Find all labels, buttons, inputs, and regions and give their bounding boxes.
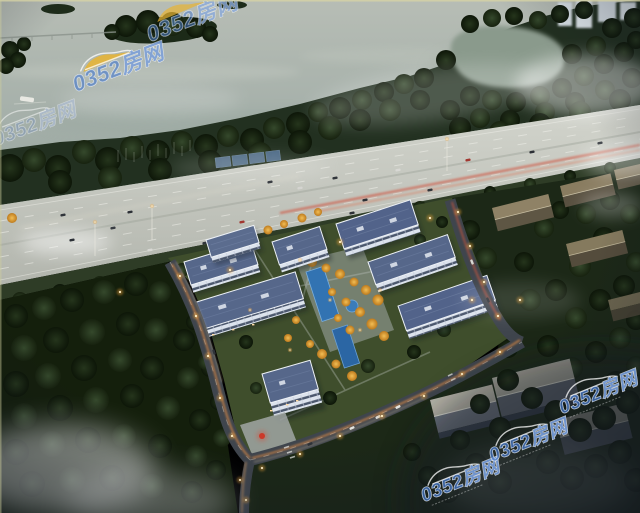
left-border-artifact	[0, 0, 2, 513]
top-border-artifact	[0, 0, 640, 2]
rendering-canvas: 0352房网 0352房网 0352房网 0352房网 0352房网 0352房…	[0, 0, 640, 513]
aerial-rendering-image: 0352房网 0352房网 0352房网 0352房网 0352房网 0352房…	[0, 0, 640, 513]
